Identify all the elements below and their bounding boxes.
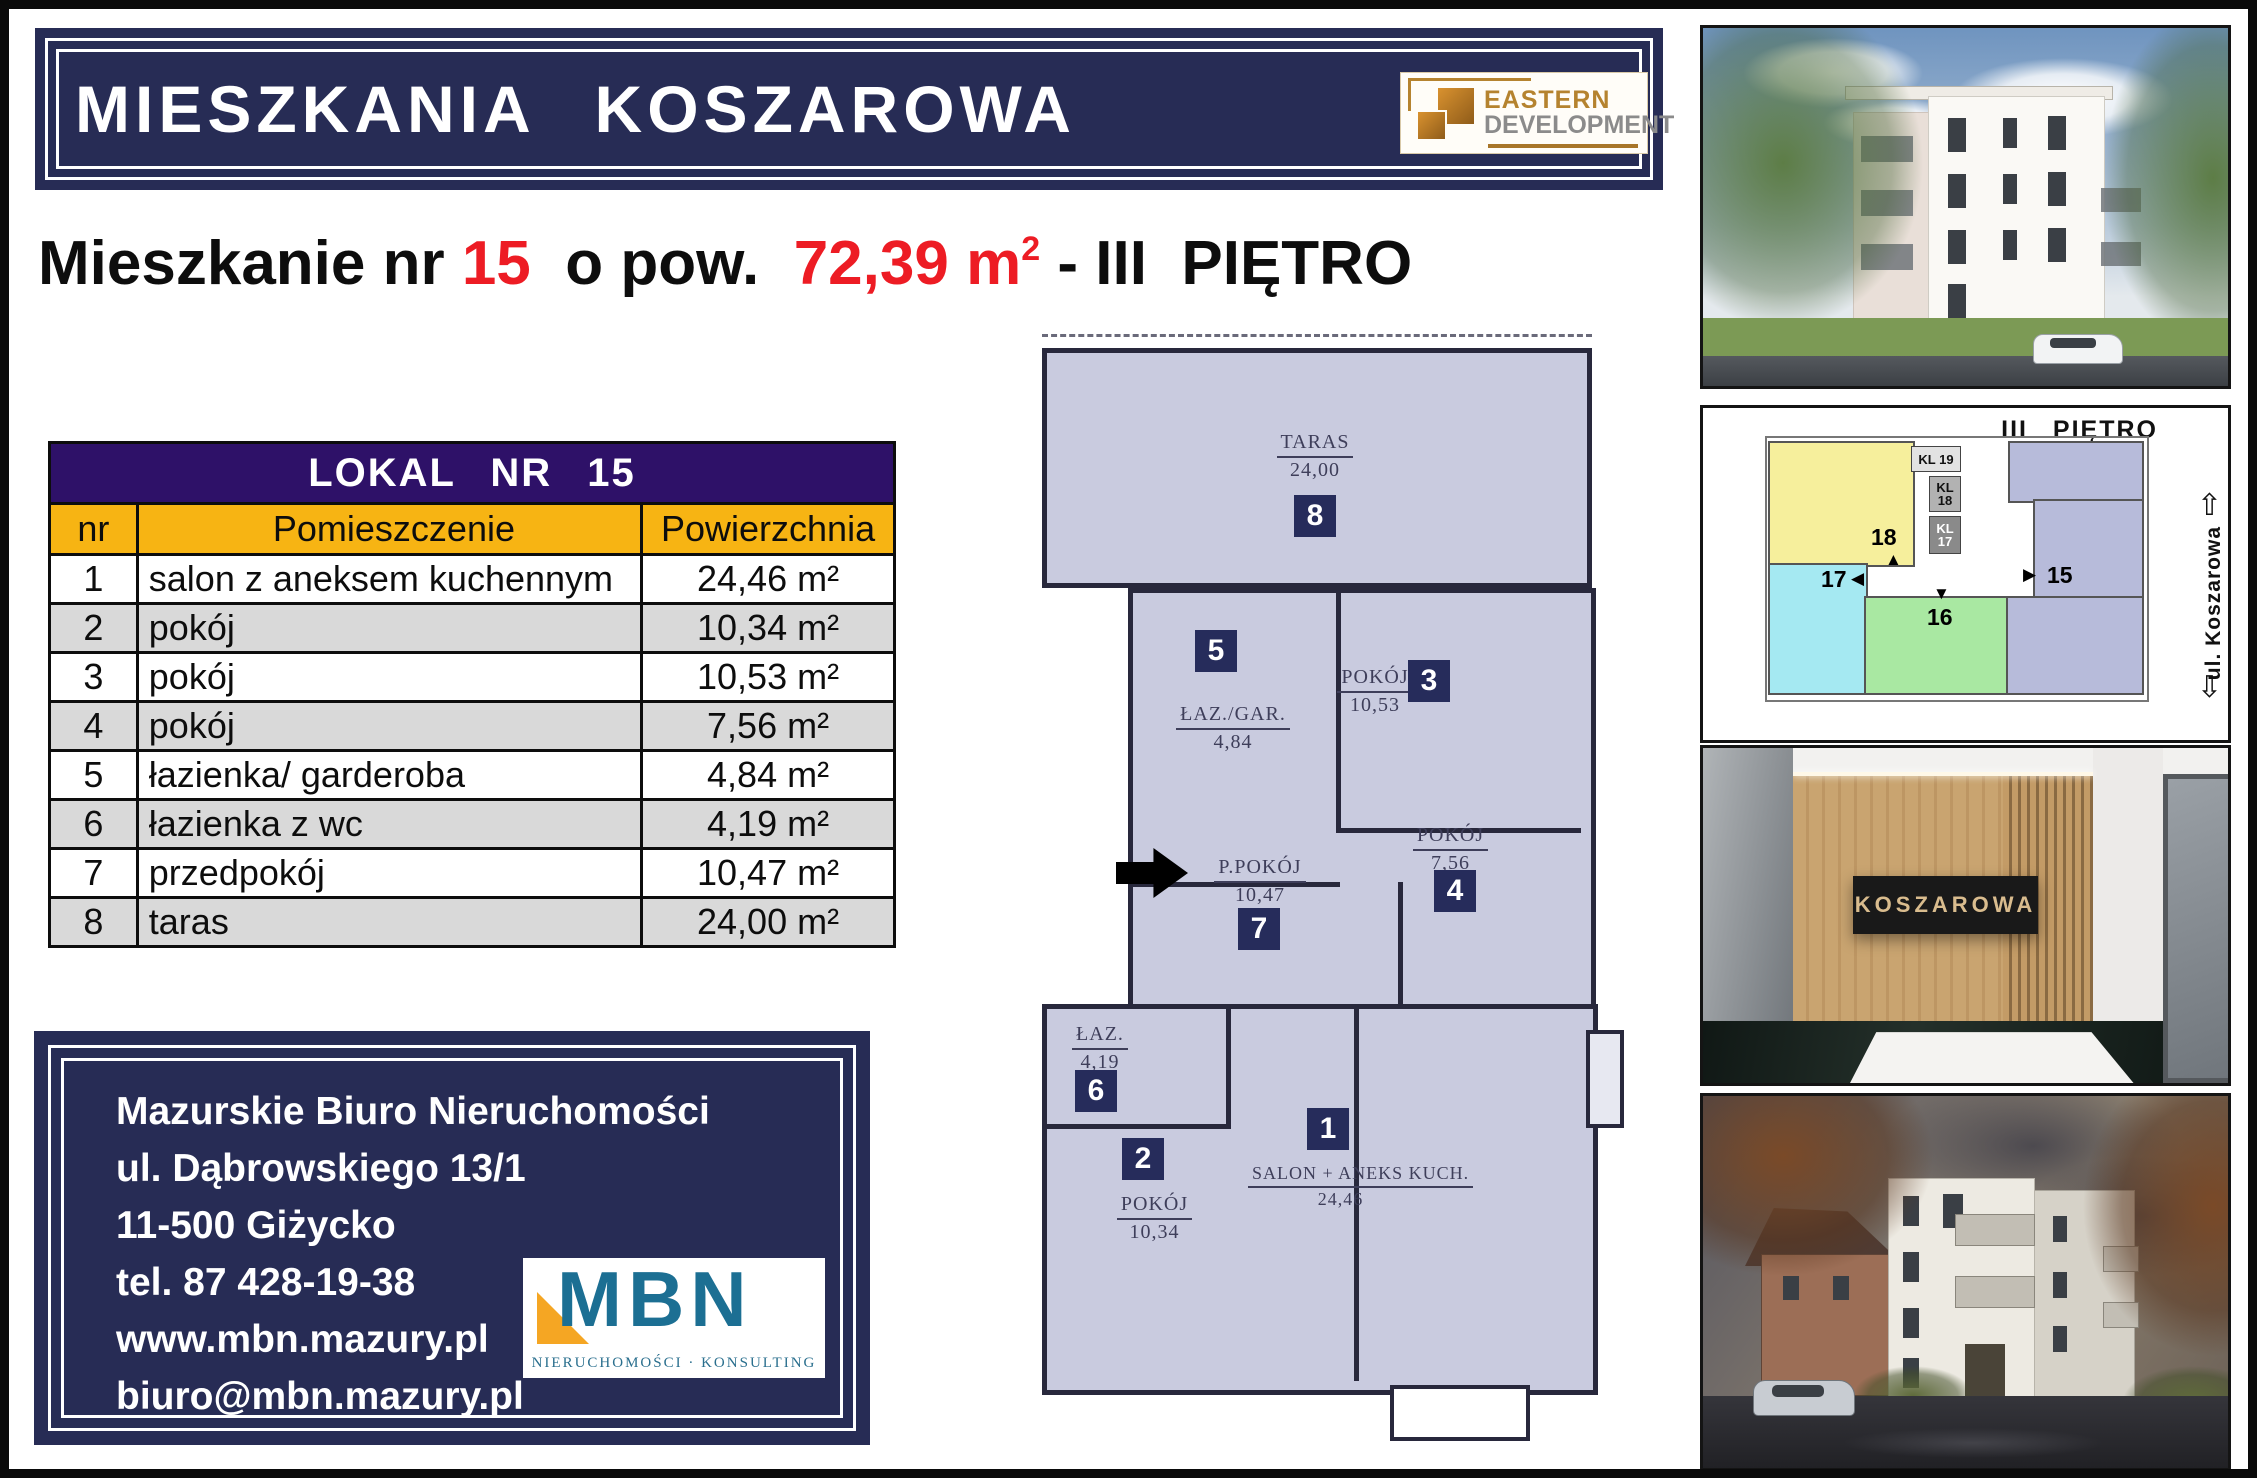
unit-number-15: 15 — [2047, 562, 2073, 589]
room-badge-8: 8 — [1294, 495, 1336, 537]
floor-overview-plan: III PIĘTRO KL 19 KL 18 KL 17 18 ▲ 17 ◀ ▼… — [1700, 405, 2231, 743]
street-label: ul. Koszarowa — [2202, 526, 2226, 680]
room-badge-1: 1 — [1307, 1108, 1349, 1150]
building-photo-day — [1700, 25, 2231, 389]
street-arrow-down-icon: ⇩ — [2197, 670, 2222, 705]
room-badge-3: 3 — [1408, 660, 1450, 702]
row-area: 24,00 m² — [642, 898, 895, 947]
subtitle-floor: - III PIĘTRO — [1040, 228, 1412, 299]
unit-number-17: 17 — [1821, 566, 1847, 593]
room-badge-2: 2 — [1122, 1138, 1164, 1180]
led-strip — [1793, 772, 2093, 776]
lower-balcony — [1390, 1385, 1530, 1441]
stairwell-kl19: KL 19 — [1911, 446, 1961, 472]
car — [1753, 1380, 1855, 1416]
col-header-room: Pomieszczenie — [137, 504, 641, 555]
apartment-area: 72,39 m — [794, 228, 1022, 299]
mbn-logo-subtext: NIERUCHOMOŚCI · KONSULTING — [523, 1355, 825, 1372]
agency-name: Mazurskie Biuro Nieruchomości — [116, 1083, 710, 1140]
room-label-7: P.POKÓJ 10,47 — [1190, 855, 1330, 908]
stairwell-kl18: KL 18 — [1929, 476, 1961, 512]
car — [2033, 334, 2123, 364]
room-label-6: ŁAZ. 4,19 — [1050, 1022, 1150, 1075]
street-arrow-up-icon: ⇧ — [2197, 488, 2222, 523]
mbn-logo-text: MBN — [557, 1254, 753, 1345]
apartment-subtitle: Mieszkanie nr 15 o pow. 72,39 m2 - III P… — [38, 228, 1412, 299]
room-label-terrace: TARAS 24,00 — [1235, 430, 1395, 483]
eastern-development-squares-icon — [1416, 82, 1474, 144]
header-banner: MIESZKANIA KOSZAROWA EASTERN DEVELOPMENT — [35, 28, 1663, 190]
row-area: 4,19 m² — [642, 800, 895, 849]
glass-door — [2163, 774, 2231, 1083]
row-nr: 3 — [50, 653, 138, 702]
row-nr: 2 — [50, 604, 138, 653]
balcony — [1955, 1276, 2035, 1308]
unit-number-16: 16 — [1927, 604, 1953, 631]
unit-16-arrow-icon: ▼ — [1933, 584, 1950, 604]
lobby-sign-text: KOSZAROWA — [1855, 892, 2036, 918]
table-row: 1salon z aneksem kuchennym24,46 m² — [50, 555, 895, 604]
row-area: 7,56 m² — [642, 702, 895, 751]
table-row: 5łazienka/ garderoba4,84 m² — [50, 751, 895, 800]
room-badge-7: 7 — [1238, 908, 1280, 950]
balcony — [1955, 1214, 2035, 1246]
room-badge-5: 5 — [1195, 630, 1237, 672]
room-label-1: SALON + ANEKS KUCH. 24,46 — [1248, 1162, 1433, 1210]
row-name: salon z aneksem kuchennym — [137, 555, 641, 604]
rooms-table-title: LOKAL NR 15 — [50, 443, 895, 504]
room-label-4: POKÓJ 7,56 — [1388, 823, 1513, 876]
row-nr: 8 — [50, 898, 138, 947]
table-row: 7przedpokój10,47 m² — [50, 849, 895, 898]
apartment-floor-plan: TARAS 24,00 8 ŁAZ./GAR. 4,84 5 POKÓJ 10,… — [1020, 330, 1632, 1470]
row-area: 24,46 m² — [642, 555, 895, 604]
col-header-area: Powierzchnia — [642, 504, 895, 555]
room-badge-4: 4 — [1434, 870, 1476, 912]
table-row: 6łazienka z wc4,19 m² — [50, 800, 895, 849]
road — [1703, 356, 2228, 386]
unit-17-arrow-icon: ◀ — [1851, 569, 1864, 589]
developer-logo-line2: DEVELOPMENT — [1484, 113, 1674, 139]
room-badge-6: 6 — [1075, 1070, 1117, 1112]
subtitle-mid: o pow. — [531, 228, 794, 299]
building-photo-autumn — [1700, 1093, 2231, 1471]
row-name: przedpokój — [137, 849, 641, 898]
flyer-canvas: MIESZKANIA KOSZAROWA EASTERN DEVELOPMENT… — [0, 0, 2257, 1478]
row-area: 10,34 m² — [642, 604, 895, 653]
apartment-number: 15 — [462, 228, 531, 299]
developer-logo: EASTERN DEVELOPMENT — [1400, 72, 1648, 154]
row-nr: 7 — [50, 849, 138, 898]
unit-15-area-bottom — [2006, 596, 2144, 695]
row-area: 10,47 m² — [642, 849, 895, 898]
agency-city: 11-500 Giżycko — [116, 1197, 710, 1254]
row-name: pokój — [137, 604, 641, 653]
row-name: pokój — [137, 702, 641, 751]
subtitle-prefix: Mieszkanie nr — [38, 228, 462, 299]
rooms-table: LOKAL NR 15 nr Pomieszczenie Powierzchni… — [48, 441, 896, 948]
page-title: MIESZKANIA KOSZAROWA — [75, 28, 1076, 190]
lobby-sign: KOSZAROWA — [1853, 876, 2038, 934]
developer-logo-underline — [1488, 144, 1638, 148]
unit-15-arrow-icon: ▶ — [2023, 565, 2036, 585]
unit-15-area-top — [2008, 441, 2144, 503]
mbn-logo: MBN NIERUCHOMOŚCI · KONSULTING — [523, 1258, 825, 1378]
table-row: 8taras24,00 m² — [50, 898, 895, 947]
row-nr: 6 — [50, 800, 138, 849]
row-name: łazienka/ garderoba — [137, 751, 641, 800]
stairwell-kl17: KL 17 — [1929, 516, 1961, 554]
room-label-5: ŁAZ./GAR. 4,84 — [1158, 702, 1308, 755]
col-header-nr: nr — [50, 504, 138, 555]
grass — [1703, 318, 2228, 358]
side-balcony-door — [1586, 1030, 1624, 1128]
room-label-2: POKÓJ 10,34 — [1092, 1192, 1217, 1245]
row-name: taras — [137, 898, 641, 947]
row-nr: 1 — [50, 555, 138, 604]
unit-number-18: 18 — [1871, 524, 1897, 551]
table-row: 3pokój10,53 m² — [50, 653, 895, 702]
agency-street: ul. Dąbrowskiego 13/1 — [116, 1140, 710, 1197]
table-row: 4pokój7,56 m² — [50, 702, 895, 751]
apartment-area-sup: 2 — [1021, 230, 1040, 269]
row-name: pokój — [137, 653, 641, 702]
agency-contact-box: Mazurskie Biuro Nieruchomości ul. Dąbrow… — [34, 1031, 870, 1445]
row-area: 10,53 m² — [642, 653, 895, 702]
row-nr: 4 — [50, 702, 138, 751]
unit-18-arrow-icon: ▲ — [1885, 550, 1902, 570]
row-name: łazienka z wc — [137, 800, 641, 849]
lobby-photo: KOSZAROWA — [1700, 745, 2231, 1086]
table-row: 2pokój10,34 m² — [50, 604, 895, 653]
row-area: 4,84 m² — [642, 751, 895, 800]
row-nr: 5 — [50, 751, 138, 800]
